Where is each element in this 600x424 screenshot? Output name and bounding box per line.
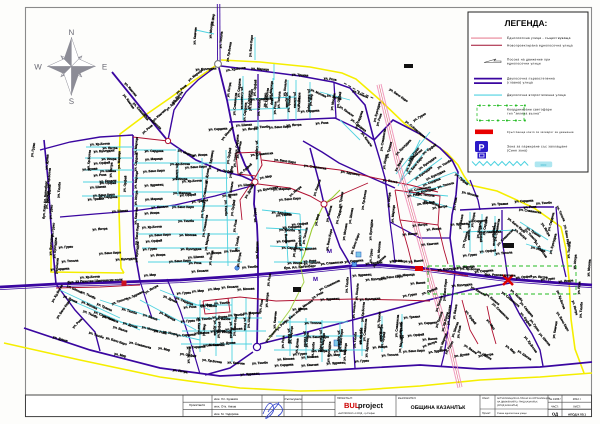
svg-text:ул. Славянска: ул. Славянска [129,340,152,350]
svg-text:ул. Хр.Ботев: ул. Хр.Ботев [556,290,567,310]
svg-text:ЧАСТ:: ЧАСТ: [551,405,559,409]
svg-text:ул. Кенали: ул. Кенали [221,285,238,290]
svg-text:ул. Шипка: ул. Шипка [538,332,551,347]
svg-text:ул. Вазов: ул. Вазов [194,331,209,336]
svg-text:М: М [313,276,318,283]
svg-text:ул. Москва: ул. Москва [461,190,479,198]
svg-text:ул. Топола: ул. Топола [305,321,322,325]
svg-text:ул. Марица: ул. Марица [145,197,163,202]
svg-text:ул. Искра: ул. Искра [150,253,165,258]
svg-text:ул. Искра: ул. Искра [206,251,221,256]
svg-text:ул. Хр.Ботев: ул. Хр.Ботев [523,335,538,354]
svg-text:ул. Бачо Киро: ул. Бачо Киро [172,205,194,209]
svg-text:ул. Сердика: ул. Сердика [208,126,227,131]
svg-text:ул. Роза: ул. Роза [456,325,462,339]
svg-text:ул. Сердика: ул. Сердика [282,246,301,251]
svg-text:ул. Москва: ул. Москва [301,355,319,360]
svg-text:ул. Бачо Киро: ул. Бачо Киро [149,232,171,237]
svg-text:E: E [102,63,107,72]
svg-text:ул. Марица: ул. Марица [251,66,269,71]
svg-text:Схема еднопосочни улици: Схема еднопосочни улици [497,412,527,415]
svg-text:ул. Мир: ул. Мир [486,318,496,330]
svg-text:ул. Здравец: ул. Здравец [126,289,145,301]
svg-text:ул. Орфей: ул. Орфей [226,147,233,164]
svg-text:ул. Славянска: ул. Славянска [321,260,344,266]
svg-text:ул. Топола: ул. Топола [276,91,281,108]
svg-text:инж. Пл. Бучаков: инж. Пл. Бучаков [214,397,238,401]
svg-text:ул. Тракия: ул. Тракия [88,197,105,202]
svg-text:ул. Тракия: ул. Тракия [286,95,291,112]
svg-text:ул. Славянска: ул. Славянска [491,302,510,321]
svg-text:ул. Бачо Киро: ул. Бачо Киро [325,229,333,251]
svg-text:ВЪЗЛОЖИТЕЛ:: ВЪЗЛОЖИТЕЛ: [398,397,416,400]
svg-text:ул. Камчия: ул. Камчия [552,321,559,339]
svg-text:ул. Орфей: ул. Орфей [122,176,127,193]
svg-text:Проект:: Проект: [482,412,491,415]
svg-text:ул. Тюлбе: ул. Тюлбе [214,301,230,306]
svg-text:ул. Гурко: ул. Гурко [59,245,74,250]
svg-text:ул. Бачо Киро: ул. Бачо Киро [185,164,207,169]
svg-text:ул. Здравец: ул. Здравец [144,183,163,188]
svg-text:ул. Орфей: ул. Орфей [480,248,497,253]
svg-text:ул. Гурко: ул. Гурко [541,276,556,281]
svg-text:ул. Топола: ул. Топола [111,296,128,306]
svg-text:ул. Дунав: ул. Дунав [454,352,470,358]
svg-text:ул. Камчия: ул. Камчия [255,241,260,259]
svg-text:ул. Роза: ул. Роза [272,101,277,114]
svg-text:ул. Шипка: ул. Шипка [188,255,204,260]
svg-text:НА ДВИЖЕНИЕТО, ГРАД КАЗАНЛЪК: НА ДВИЖЕНИЕТО, ГРАД КАЗАНЛЪК [497,401,538,404]
svg-text:ул. Тюлбе: ул. Тюлбе [254,125,270,130]
svg-text:ул. Искра: ул. Искра [264,292,269,307]
svg-text:ул. Роза: ул. Роза [93,173,106,178]
svg-text:ул. Тюлбе: ул. Тюлбе [344,277,349,293]
svg-text:ул. Славянска: ул. Славянска [362,318,368,341]
svg-text:(главна) улица: (главна) улица [507,80,533,84]
svg-text:ул. Гурко: ул. Гурко [50,223,55,238]
svg-text:ул. Мир: ул. Мир [314,213,320,226]
svg-text:ул. Сердика: ул. Сердика [176,332,195,337]
svg-text:ул. Москва: ул. Москва [208,21,213,39]
svg-text:ул. Хр.Ботев: ул. Хр.Ботев [182,178,202,183]
svg-text:ул. Тюлбе: ул. Тюлбе [276,213,292,218]
svg-text:еднопосочни улици: еднопосочни улици [507,61,541,65]
svg-text:ул. Камчия: ул. Камчия [301,363,319,368]
svg-text:ул. Мир: ул. Мир [200,303,212,308]
svg-text:ул. Янтра: ул. Янтра [144,284,159,295]
svg-text:ул. Сердика: ул. Сердика [344,258,363,264]
svg-text:ул. Здравец: ул. Здравец [341,169,360,176]
svg-text:ул. Марица: ул. Марица [145,157,163,162]
svg-text:ул. Искра: ул. Искра [133,190,138,205]
svg-text:W: W [34,63,42,72]
svg-text:ул. Мир: ул. Мир [192,289,204,294]
svg-text:ул. Гурко: ул. Гурко [48,205,53,220]
svg-text:ул. Топола: ул. Топола [437,181,454,189]
svg-text:ул. Бузлуджа: ул. Бузлуджа [134,241,140,262]
svg-text:ул. Роза: ул. Роза [315,121,328,126]
svg-text:ул. Мир: ул. Мир [208,287,220,292]
svg-text:ул. Сердика: ул. Сердика [255,141,259,160]
svg-text:ул. Орфей: ул. Орфей [146,239,163,244]
svg-text:ул. Гурко: ул. Гурко [181,319,196,324]
svg-text:ул. Славянска: ул. Славянска [251,151,274,157]
svg-text:ул. Сердика: ул. Сердика [133,152,139,171]
svg-text:ул. Бузлуджа: ул. Бузлуджа [181,247,202,251]
svg-text:ул. Топола: ул. Топола [381,353,398,358]
svg-text:ул. Сердика: ул. Сердика [276,238,295,243]
svg-text:ул. Искра: ул. Искра [210,329,225,334]
svg-text:ул. Марица: ул. Марица [342,343,348,361]
svg-text:ул. Славянска: ул. Славянска [379,128,387,151]
svg-text:ул. Сердика: ул. Сердика [242,102,248,121]
svg-text:ул. Камчия: ул. Камчия [133,207,139,225]
svg-text:ул. Марица: ул. Марица [390,205,396,223]
svg-text:ул. Сердика: ул. Сердика [300,108,319,113]
svg-text:ул. Мир: ул. Мир [328,353,340,358]
svg-text:ул. Бузлуджа: ул. Бузлуджа [93,148,114,153]
svg-text:ул. Москва: ул. Москва [586,259,591,277]
svg-text:ул. Гурко: ул. Гурко [30,142,36,157]
svg-text:ул. Тюлбе: ул. Тюлбе [242,264,258,269]
svg-text:ул. Тракия: ул. Тракия [292,72,309,77]
svg-text:ул. Кенали: ул. Кенали [338,105,354,118]
svg-text:ул. Тюлбе: ул. Тюлбе [228,313,244,318]
svg-text:ул. Искра: ул. Искра [192,153,207,158]
svg-text:P: P [478,142,484,152]
svg-text:ул. Москва: ул. Москва [277,357,295,362]
svg-text:ул. Бузлуджа: ул. Бузлуджа [548,233,557,254]
svg-text:ул. Марица: ул. Марица [397,272,415,277]
svg-text:ул. Камчия: ул. Камчия [227,360,245,366]
svg-text:(АПОД КАЗАНЛЪК): (АПОД КАЗАНЛЪК) [497,404,518,407]
svg-text:инж. Отк. Ников: инж. Отк. Ников [214,405,237,409]
svg-text:ул. Дунав: ул. Дунав [212,315,227,320]
svg-text:ул. Тюлбе: ул. Тюлбе [256,100,261,116]
svg-text:ул. Роза: ул. Роза [576,281,581,294]
svg-text:ул. Шипка: ул. Шипка [236,123,252,128]
svg-text:ЛЕГЕНДА:: ЛЕГЕНДА: [505,18,548,28]
svg-text:ул. Искра: ул. Искра [382,154,389,170]
svg-text:ул. Вазов: ул. Вазов [113,325,129,333]
svg-text:ул. Янтра: ул. Янтра [286,123,301,128]
svg-text:тип "зелена вълна": тип "зелена вълна" [507,111,541,115]
svg-text:Кръстовища които се затварят з: Кръстовища които се затварят за движение [507,131,574,134]
svg-text:ул. Шипка: ул. Шипка [175,164,179,180]
svg-text:ул. Шипка: ул. Шипка [112,209,128,214]
svg-text:ЛИСТ:: ЛИСТ: [573,405,581,409]
svg-text:ул. Кенали: ул. Кенали [360,131,373,147]
svg-text:Еднопосочна улица - съществува: Еднопосочна улица - съществуваща [507,36,571,40]
svg-text:ул. Бачо Киро: ул. Бачо Киро [105,336,127,347]
svg-text:project: project [358,401,384,410]
svg-text:ул. Янтра: ул. Янтра [92,226,107,231]
svg-text:ул. Топола: ул. Топола [61,259,78,264]
svg-text:ул. Роза: ул. Роза [232,219,238,233]
svg-text:ул. Орфей: ул. Орфей [230,199,237,216]
svg-text:ОБЩИНА КАЗАНЛЪК: ОБЩИНА КАЗАНЛЪК [411,405,467,411]
svg-text:ул. Вазов: ул. Вазов [408,258,423,263]
svg-text:ул. Бузлуджа: ул. Бузлуджа [368,219,374,240]
svg-text:ул. Тюлбе: ул. Тюлбе [121,307,137,316]
svg-text:ул. Мир: ул. Мир [158,346,171,352]
svg-text:«БУЛПРОЕКТ» ЕООД - гр.София: «БУЛПРОЕКТ» ЕООД - гр.София [338,412,376,415]
svg-text:ул. Тюлбе: ул. Тюлбе [352,332,357,348]
svg-text:ул. Тракия: ул. Тракия [404,314,421,319]
svg-text:ул. Дунав: ул. Дунав [220,341,235,346]
svg-text:АПОД К 00.1: АПОД К 00.1 [568,413,586,417]
svg-text:≈≈≈: ≈≈≈ [540,163,546,167]
svg-text:ул. Хр.Ботев: ул. Хр.Ботев [225,42,232,62]
svg-text:ул. Искра: ул. Искра [304,332,309,347]
svg-text:ул. Камчия: ул. Камчия [192,27,198,45]
svg-text:ул. Марица: ул. Марица [133,171,139,189]
svg-text:ул. Москва: ул. Москва [342,223,349,241]
svg-text:ул. Роза: ул. Роза [183,305,196,310]
svg-text:ул. Кенали: ул. Кенали [151,204,168,209]
svg-text:ул. Марица: ул. Марица [133,137,139,155]
svg-text:ул. Гурко: ул. Гурко [253,208,258,223]
svg-text:ул. Тракия: ул. Тракия [492,202,509,207]
svg-text:ул. Мир: ул. Мир [308,94,313,106]
svg-text:ул. Тюлбе: ул. Тюлбе [196,317,212,322]
svg-text:ул. Кенали: ул. Кенали [191,269,208,274]
svg-text:ул. Кенали: ул. Кенали [351,301,356,318]
svg-text:Съгласували: Съгласували [285,397,302,401]
svg-text:ул. Искра: ул. Искра [144,211,159,216]
svg-text:ул. Орфей: ул. Орфей [422,143,438,156]
svg-text:ул. Роза: ул. Роза [266,273,272,287]
svg-text:2012 г.: 2012 г. [573,397,582,401]
svg-text:ул. Марица: ул. Марица [117,151,122,169]
svg-text:ул. Шипка: ул. Шипка [348,207,355,224]
svg-text:ул. Гурко: ул. Гурко [177,291,192,296]
svg-text:ул. Дунав: ул. Дунав [52,335,68,343]
svg-text:ул. Сердика: ул. Сердика [282,224,301,229]
svg-text:ул. Хр.Ботев: ул. Хр.Ботев [202,358,222,365]
svg-text:ул. Топола: ул. Топола [325,205,333,222]
svg-text:ул. Роза: ул. Роза [71,317,83,329]
svg-text:АКТУАЛИЗАЦИЯ НА ПЛАНА ЗА ОРГАН: АКТУАЛИЗАЦИЯ НА ПЛАНА ЗА ОРГАНИЗАЦИЯ [497,397,550,400]
svg-text:ул. Бачо Киро: ул. Бачо Киро [556,311,570,332]
svg-text:ул. Роза: ул. Роза [275,319,287,331]
svg-text:ул. Дунав: ул. Дунав [44,154,49,170]
svg-text:ул. Бузлуджа: ул. Бузлуджа [52,237,58,258]
svg-text:ул. Славянска: ул. Славянска [232,92,238,115]
svg-text:ул. Москва: ул. Москва [179,233,196,237]
svg-text:ул. Шипка: ул. Шипка [66,284,82,294]
svg-text:ул. Москва: ул. Москва [376,241,381,259]
svg-text:ул. Шипка: ул. Шипка [90,185,106,190]
svg-text:ул. Тюлбе: ул. Тюлбе [578,302,583,318]
svg-text:ул. Топола: ул. Топола [218,31,223,48]
svg-text:ул. Хр.Ботев: ул. Хр.Ботев [264,88,270,108]
svg-text:ул. Роза: ул. Роза [141,123,154,134]
svg-text:ул. Хр.Ботев: ул. Хр.Ботев [360,190,367,210]
svg-text:ул. Вазов: ул. Вазов [452,304,459,320]
svg-text:N: N [69,28,75,37]
svg-text:ул. Топола: ул. Топола [495,250,512,255]
svg-text:ул. Шипка: ул. Шипка [517,349,533,362]
svg-text:ул. Янтра: ул. Янтра [226,82,233,98]
svg-text:ул. Вазов: ул. Вазов [143,313,159,322]
svg-text:ул. Тракия: ул. Тракия [338,191,345,208]
svg-text:ул. Сердика: ул. Сердика [514,198,533,203]
svg-text:ПРОЕКТАНТ:: ПРОЕКТАНТ: [337,397,353,400]
svg-text:ул. Орфей: ул. Орфей [516,274,533,279]
svg-text:ул. Искра: ул. Искра [572,254,577,269]
svg-text:ул. Марица: ул. Марица [159,310,177,322]
svg-text:ул. Бачо Киро: ул. Бачо Киро [143,168,165,173]
svg-text:ул. Бачо Киро: ул. Бачо Киро [99,250,121,255]
svg-text:ул. Сердика: ул. Сердика [50,266,69,271]
svg-text:ул. Тюлбе: ул. Тюлбе [178,219,194,223]
svg-text:ул. Марица: ул. Марица [288,326,294,344]
svg-text:ул. Гурко: ул. Гурко [355,359,370,364]
svg-text:ул. Искра: ул. Искра [163,330,179,337]
svg-text:ул. Здравец: ул. Здравец [326,361,345,366]
svg-text:ул. Сердика: ул. Сердика [145,149,164,153]
svg-text:ул. Москва: ул. Москва [237,287,255,292]
svg-text:ул. Гурко: ул. Гурко [463,253,478,258]
svg-text:ул. Славянска: ул. Славянска [319,278,341,291]
svg-text:ул. Бузлуджа: ул. Бузлуджа [359,296,380,301]
svg-text:ул. Мир: ул. Мир [260,174,273,180]
svg-text:ОД: ОД [552,412,558,417]
svg-text:ул. Хр.Ботев: ул. Хр.Ботев [142,224,162,229]
svg-text:ул. Орфей: ул. Орфей [94,161,111,166]
svg-text:ул. Бузлуджа: ул. Бузлуджа [451,282,472,287]
svg-text:ул. Бачо Киро: ул. Бачо Киро [388,87,408,103]
svg-text:ул. Марица: ул. Марица [273,187,291,192]
svg-text:ул. Бузлуджа: ул. Бузлуджа [395,138,413,156]
svg-text:ул. Роза: ул. Роза [280,335,285,348]
svg-text:ул. Гурко: ул. Гурко [412,112,427,123]
svg-text:ул. Гурко: ул. Гурко [143,247,158,252]
svg-text:ул. Янтра: ул. Янтра [172,368,188,375]
svg-text:ул. Бачо Киро: ул. Бачо Киро [349,233,360,255]
svg-text:ул. Сердика: ул. Сердика [274,362,293,367]
svg-text:ул. Мир: ул. Мир [144,273,156,278]
svg-text:ул. Здравец: ул. Здравец [320,297,339,302]
svg-text:ул. Бузлуджа: ул. Бузлуджа [326,341,332,362]
svg-text:Новопроектирана еднопосочна ул: Новопроектирана еднопосочна улица [507,43,573,47]
svg-text:ул. Тюлбе: ул. Тюлбе [224,249,240,254]
svg-text:ул. Тюлбе: ул. Тюлбе [536,201,552,206]
svg-text:ул. Тюлбе: ул. Тюлбе [224,200,228,216]
svg-text:№ 19037: № 19037 [549,397,561,401]
svg-text:ул. Бузлуджа: ул. Бузлуджа [195,66,216,71]
svg-text:ул. Вазов: ул. Вазов [410,280,425,285]
svg-text:(Синя зона): (Синя зона) [507,148,528,152]
svg-text:ул. Мир: ул. Мир [505,344,517,355]
svg-text:Обект:: Обект: [482,397,490,400]
svg-text:ул. Янтра: ул. Янтра [108,162,113,178]
svg-text:ул. Бачо Киро: ул. Бачо Киро [403,348,425,353]
svg-text:ул. Орфей: ул. Орфей [180,193,197,198]
svg-text:ул. Бачо Киро: ул. Бачо Киро [55,299,71,319]
svg-text:ул. Гурко: ул. Гурко [402,292,417,298]
svg-text:ул. Здравец: ул. Здравец [364,338,370,357]
svg-text:ул. Москва: ул. Москва [299,246,317,251]
svg-text:ул. Бачо Киро: ул. Бачо Киро [248,35,254,57]
svg-text:ул. Роза: ул. Роза [452,197,458,211]
svg-text:ул. Здравец: ул. Здравец [240,371,259,376]
svg-text:Двупосочна второстепенна улица: Двупосочна второстепенна улица [507,93,566,97]
svg-text:ул. Москва: ул. Москва [141,325,159,333]
svg-text:ул. Тюлбе: ул. Тюлбе [252,361,268,366]
svg-text:ул. Янтра: ул. Янтра [432,204,448,210]
svg-text:ул. Тюлбе: ул. Тюлбе [56,182,61,198]
svg-text:инж. М. Тодорова: инж. М. Тодорова [214,412,239,416]
svg-text:ул. Янтра: ул. Янтра [571,300,579,316]
svg-text:Проектанти: Проектанти [189,403,206,407]
svg-text:ул. Бачо Киро: ул. Бачо Киро [307,335,329,339]
svg-text:S: S [69,97,74,106]
svg-text:ул. Камчия: ул. Камчия [421,241,439,246]
svg-text:ул. Ст.Кожухаров: ул. Ст.Кожухаров [405,119,427,139]
svg-text:ул. Роза: ул. Роза [523,205,536,210]
